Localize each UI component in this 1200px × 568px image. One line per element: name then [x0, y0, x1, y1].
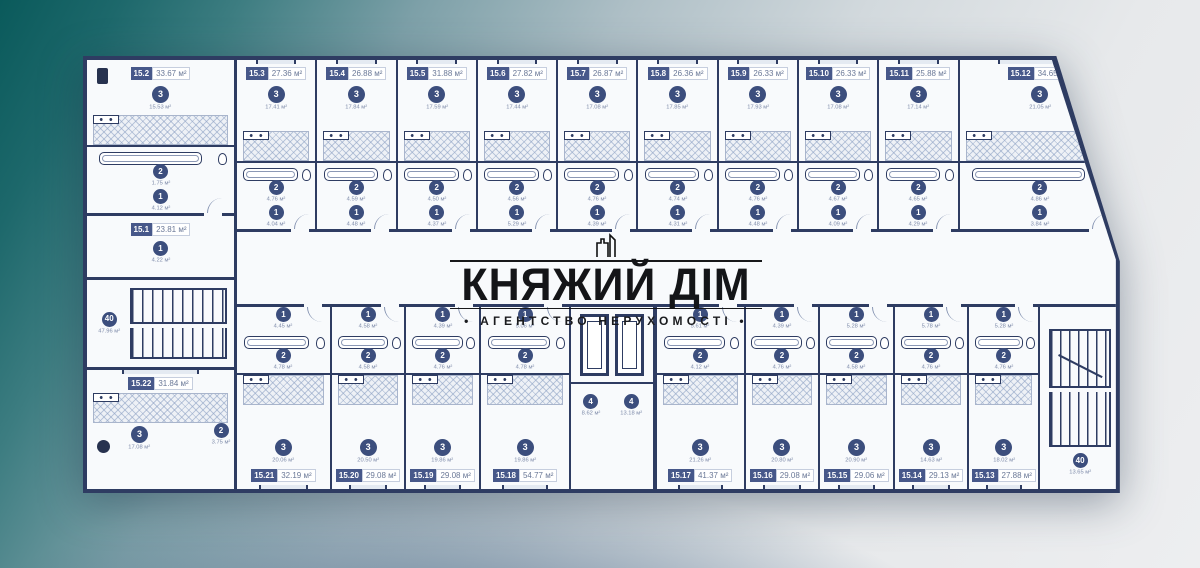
lobby-badge: 413.18 м² [616, 394, 646, 418]
room-number-badge: 2 [911, 180, 926, 195]
unit-badge: 15.233.67 м² [131, 67, 191, 80]
unit-number-label: 15.9 [728, 67, 750, 80]
unit-area-label: 32.19 м² [277, 469, 315, 482]
unit-badge: 15.1234.65 м² [1008, 67, 1072, 80]
stove-icon [93, 115, 119, 124]
room-number-badge: 2 [590, 180, 605, 195]
room-area-label: 4.76 м² [588, 196, 607, 202]
unit-number-label: 15.6 [487, 67, 509, 80]
room-area-label: 4.29 м² [909, 221, 928, 227]
door-opening [371, 229, 389, 232]
stove-icon [826, 375, 852, 384]
hallway-badge: 14.31 м² [665, 205, 691, 229]
room-area-label: 17.08 м² [129, 444, 151, 450]
bathroom-badge: 21.75 м² [148, 164, 174, 188]
hallway-badge: 15.06 м² [512, 307, 538, 331]
living-room-badge: 314.63 м² [916, 439, 946, 465]
room-number-badge: 3 [275, 439, 292, 456]
room-number-badge: 1 [349, 205, 364, 220]
room-area-label: 4.76 м² [994, 364, 1013, 370]
unit-15.10: 15.1026.33 м²317.08 м²24.67 м²14.09 м² [797, 60, 877, 232]
stove-icon [805, 131, 831, 140]
window-icon [259, 485, 307, 489]
door-swing-icon [384, 307, 399, 322]
living-room-badge: 317.41 м² [261, 86, 291, 112]
door-swing-icon [722, 307, 737, 322]
room-area-label: 4.86 м² [1030, 196, 1049, 202]
stair-steps [1049, 329, 1111, 447]
room-area-label: 5.61 м² [691, 323, 710, 329]
bathroom-badge: 24.58 м² [844, 348, 870, 372]
unit-15.19: 14.39 м²24.76 м²319.86 м²15.1929.08 м² [404, 304, 479, 489]
toilet-icon [556, 337, 565, 349]
left-section: 15.233.67 м²315.53 м²21.75 м²14.12 м²15.… [87, 60, 237, 489]
living-room-badge: 317.59 м² [422, 86, 452, 112]
unit-15.20: 14.58 м²24.58 м²320.50 м²15.2029.08 м² [330, 304, 405, 489]
hallway: 14.37 м² [398, 205, 476, 229]
room-area-label: 4.65 м² [909, 196, 928, 202]
bathroom-badge: 24.56 м² [504, 180, 530, 204]
window-icon [657, 60, 698, 64]
bathroom: 24.78 м² [481, 331, 570, 375]
bathroom: 24.12 м² [657, 331, 744, 375]
bathroom-badge: 24.74 м² [665, 180, 691, 204]
unit-area-label: 26.88 м² [348, 67, 386, 80]
room-area-label: 17.08 м² [586, 104, 608, 110]
bathroom-badge: 24.76 м² [991, 348, 1017, 372]
door-swing-icon [1018, 307, 1033, 322]
unit-badge: 15.1929.08 м² [410, 469, 474, 482]
bathroom: 24.76 м² [406, 331, 479, 375]
room-number-badge: 1 [361, 307, 376, 322]
bathroom: 24.58 м² [820, 331, 893, 375]
hallway: 14.58 м² [332, 307, 405, 331]
unit-area-label: 26.87 м² [589, 67, 627, 80]
hallway: 14.31 м² [638, 205, 716, 229]
unit-15.12: 15.1234.65 м²321.05 м²24.86 м²13.84 м² [958, 60, 1120, 232]
unit-badge: 15.1125.88 м² [886, 67, 950, 80]
room-area-label: 5.78 м² [922, 323, 941, 329]
bathroom-badge: 24.12 м² [687, 348, 713, 372]
living-room-badge: 317.08 м² [124, 426, 154, 452]
door-swing-icon [535, 214, 550, 229]
room-number-badge: 40 [1073, 453, 1088, 468]
room-number-badge: 2 [361, 348, 376, 363]
hallway-badge: 13.84 м² [1027, 205, 1053, 229]
kitchen-floor [966, 131, 1114, 161]
room-area-label: 8.62 м² [581, 410, 600, 416]
room-number-badge: 1 [435, 307, 450, 322]
room-number-badge: 3 [508, 86, 525, 103]
door-swing-icon [615, 214, 630, 229]
window-icon [122, 370, 198, 374]
bathroom: 24.58 м² [332, 331, 405, 375]
hallway: 14.48 м² [719, 205, 797, 229]
unit-number-label: 15.22 [128, 377, 154, 390]
hallway: 14.39 м² [746, 307, 819, 331]
unit-badge: 15.1741.37 м² [668, 469, 732, 482]
bathroom-badge: 24.76 м² [584, 180, 610, 204]
living-room-badge: 317.08 м² [823, 86, 853, 112]
window-icon [912, 485, 950, 489]
unit-number-label: 15.11 [886, 67, 912, 80]
stove-icon [484, 131, 510, 140]
unit-badge: 15.2029.08 м² [336, 469, 400, 482]
stove-icon [487, 375, 513, 384]
unit-number-label: 15.18 [493, 469, 519, 482]
room-number-badge: 2 [269, 180, 284, 195]
hallway: 15.28 м² [969, 307, 1038, 331]
bathroom: 24.76 м² [558, 161, 636, 205]
stove-icon [725, 131, 751, 140]
stove-icon [93, 393, 119, 402]
room-number-badge: 2 [670, 180, 685, 195]
unit-badge: 15.1026.33 м² [806, 67, 870, 80]
unit-number-label: 15.14 [899, 469, 925, 482]
elevator-shafts [571, 307, 652, 384]
room-area-label: 4.12 м² [151, 205, 170, 211]
unit-number-label: 15.2 [131, 67, 153, 80]
room-area-label: 3.84 м² [1030, 221, 1049, 227]
living-room-badge: 319.86 м² [427, 439, 457, 465]
hallway: 14.48 м² [317, 205, 395, 229]
hallway: 15.06 м² [481, 307, 570, 331]
hallway-badge: 14.29 м² [905, 205, 931, 229]
hallway-badge: 15.28 м² [991, 307, 1017, 331]
room-number-badge: 3 [923, 439, 940, 456]
corridor [237, 232, 1120, 304]
room-area-label: 5.29 м² [508, 221, 527, 227]
room-area-label: 4.58 м² [359, 364, 378, 370]
toilet-icon [392, 337, 401, 349]
room-number-badge: 2 [153, 164, 168, 179]
room-number-badge: 3 [360, 439, 377, 456]
unit-number-label: 15.19 [410, 469, 436, 482]
room-area-label: 4.48 м² [748, 221, 767, 227]
living-room-badge: 317.44 м² [502, 86, 532, 112]
toilet-icon [316, 337, 325, 349]
room-area-label: 4.76 м² [267, 196, 286, 202]
living-room-badge: 317.93 м² [743, 86, 773, 112]
stove-icon [323, 131, 349, 140]
room-number-badge: 1 [911, 205, 926, 220]
room-area-label: 20.90 м² [846, 457, 868, 463]
room-number-badge: 3 [348, 86, 365, 103]
door-swing-icon [374, 214, 389, 229]
room-number-badge: 3 [268, 86, 285, 103]
kitchen-floor [725, 131, 791, 161]
room-area-label: 4.76 м² [433, 364, 452, 370]
unit-area-label: 26.33 м² [749, 67, 787, 80]
unit-area-label: 27.88 м² [998, 469, 1036, 482]
unit-number-label: 15.13 [972, 469, 998, 482]
living-room-badge: 320.80 м² [767, 439, 797, 465]
room-area-label: 17.93 м² [747, 104, 769, 110]
room-number-badge: 1 [924, 307, 939, 322]
bathroom: 21.75 м² [87, 145, 234, 189]
floor-plan-paper: 15.233.67 м²315.53 м²21.75 м²14.12 м²15.… [87, 60, 1120, 489]
door-opening [291, 229, 309, 232]
door-opening [933, 229, 951, 232]
room-number-badge: 1 [750, 205, 765, 220]
bathroom: 24.74 м² [638, 161, 716, 205]
unit-number-label: 15.7 [567, 67, 589, 80]
toilet-icon [624, 169, 633, 181]
unit-badge: 15.123.81 м² [131, 223, 191, 236]
toilet-icon [302, 169, 311, 181]
bathroom: 24.67 м² [799, 161, 877, 205]
door-swing-icon [547, 307, 562, 322]
room-area-label: 17.41 м² [265, 104, 287, 110]
room-area-label: 4.37 м² [427, 221, 446, 227]
room-area-label: 5.06 м² [516, 323, 535, 329]
room-number-badge: 1 [774, 307, 789, 322]
room-number-badge: 2 [693, 348, 708, 363]
door-swing-icon [936, 214, 951, 229]
room-number-badge: 3 [830, 86, 847, 103]
room-area-label: 4.39 м² [773, 323, 792, 329]
room-area-label: 4.48 м² [347, 221, 366, 227]
unit-number-label: 15.10 [806, 67, 832, 80]
toilet-icon [955, 337, 964, 349]
unit-area-label: 34.65 м² [1034, 67, 1072, 80]
bathroom-badge: 24.65 м² [905, 180, 931, 204]
room-number-badge: 2 [849, 348, 864, 363]
toilet-icon [463, 169, 472, 181]
room-number-badge: 2 [214, 423, 229, 438]
room-number-badge: 2 [509, 180, 524, 195]
room-number-badge: 1 [996, 307, 1011, 322]
room-area-label: 4.76 м² [922, 364, 941, 370]
room-area-label: 18.02 м² [993, 457, 1015, 463]
toilet-icon [1026, 337, 1035, 349]
room-area-label: 4.22 м² [151, 257, 170, 263]
kitchen-floor [805, 131, 871, 161]
unit-area-label: 31.84 м² [154, 377, 192, 390]
elevator-lobby: 48.62 м²413.18 м² [571, 384, 652, 418]
stove-icon [885, 131, 911, 140]
bathroom-badge: 24.67 м² [825, 180, 851, 204]
door-swing-icon [294, 214, 309, 229]
room-area-label: 47.96 м² [98, 328, 120, 334]
room-number-badge: 2 [924, 348, 939, 363]
hallway-badge: 14.22 м² [148, 241, 174, 265]
unit-badge: 15.1529.06 м² [824, 469, 888, 482]
room-number-badge: 1 [276, 307, 291, 322]
toilet-icon [704, 169, 713, 181]
room-number-badge: 1 [1032, 205, 1047, 220]
hallway-badge: 15.28 м² [844, 307, 870, 331]
living-room-badge: 317.84 м² [341, 86, 371, 112]
hallway-badge: 14.39 м² [430, 307, 456, 331]
elevator-shaft [580, 314, 609, 376]
kitchen-floor [975, 375, 1032, 405]
kitchen-floor [487, 375, 564, 405]
hallway: 14.09 м² [799, 205, 877, 229]
unit-area-label: 27.82 м² [509, 67, 547, 80]
room-area-label: 19.86 м² [432, 457, 454, 463]
living-room-badge: 321.05 м² [1025, 86, 1055, 112]
room-area-label: 4.45 м² [274, 323, 293, 329]
stove-icon [338, 375, 364, 384]
toilet-icon [880, 337, 889, 349]
unit-badge: 15.1854.77 м² [493, 469, 557, 482]
stove-icon [966, 131, 992, 140]
hallway-badge: 14.45 м² [270, 307, 296, 331]
room-number-badge: 4 [583, 394, 598, 409]
unit-15.8: 15.826.36 м²317.85 м²24.74 м²14.31 м² [636, 60, 716, 232]
stair-steps [130, 288, 227, 359]
unit-15.1: 15.123.81 м²14.22 м² [87, 216, 234, 280]
stove-icon [663, 375, 689, 384]
room-area-label: 4.12 м² [691, 364, 710, 370]
unit-badge: 15.726.87 м² [567, 67, 627, 80]
door-swing-icon [458, 307, 473, 322]
unit-15.21: 14.45 м²24.78 м²320.06 м²15.2132.19 м² [237, 304, 330, 489]
stove-icon [243, 131, 269, 140]
room-area-label: 4.50 м² [427, 196, 446, 202]
unit-badge: 15.531.88 м² [407, 67, 467, 80]
unit-15.16: 14.39 м²24.76 м²320.80 м²15.1629.08 м² [744, 304, 819, 489]
room-number-badge: 3 [152, 86, 169, 103]
unit-number-label: 15.21 [251, 469, 277, 482]
window-icon [678, 485, 723, 489]
stove-icon [412, 375, 438, 384]
bottom-units-row: 14.45 м²24.78 м²320.06 м²15.2132.19 м²14… [237, 304, 1120, 489]
right-stair-core: 4013.65 м² [1038, 304, 1120, 489]
room-area-label: 4.78 м² [516, 364, 535, 370]
unit-area-label: 26.33 м² [832, 67, 870, 80]
unit-15.13: 15.28 м²24.76 м²318.02 м²15.1327.88 м² [967, 304, 1038, 489]
room-area-label: 1.75 м² [151, 180, 170, 186]
living-room-badge: 319.86 м² [510, 439, 540, 465]
window-icon [256, 60, 297, 64]
room-area-label: 13.65 м² [1069, 469, 1091, 475]
door-opening [204, 213, 222, 216]
hallway-badge: 14.39 м² [584, 205, 610, 229]
unit-area-label: 33.67 м² [152, 67, 190, 80]
room-area-label: 20.06 м² [272, 457, 294, 463]
window-icon [416, 60, 457, 64]
hallway: 14.12 м² [87, 189, 234, 213]
window-icon [737, 60, 778, 64]
unit-number-label: 15.20 [336, 469, 362, 482]
bathroom: 24.76 м² [237, 161, 315, 205]
living-room-badge: 317.85 м² [662, 86, 692, 112]
hallway-badge: 15.78 м² [918, 307, 944, 331]
room-area-label: 17.08 м² [827, 104, 849, 110]
structural-column [1097, 69, 1110, 82]
floorplan-screenshot: 15.233.67 м²315.53 м²21.75 м²14.12 м²15.… [0, 0, 1200, 568]
room-area-label: 4.78 м² [274, 364, 293, 370]
unit-badge: 15.627.82 м² [487, 67, 547, 80]
living-room-badge: 315.53 м² [145, 86, 175, 112]
unit-area-label: 54.77 м² [519, 469, 557, 482]
hallway-badge: 14.58 м² [355, 307, 381, 331]
door-opening [1089, 229, 1107, 232]
room-area-label: 21.26 м² [689, 457, 711, 463]
room-number-badge: 3 [517, 439, 534, 456]
unit-15.14: 15.78 м²24.76 м²314.63 м²15.1429.13 м² [893, 304, 968, 489]
room-number-badge: 1 [153, 189, 168, 204]
door-swing-icon [797, 307, 812, 322]
toilet-icon [383, 169, 392, 181]
kitchen-floor [323, 131, 389, 161]
elevator-core: 48.62 м²413.18 м² [569, 304, 654, 489]
unit-15.22: 15.2231.84 м²317.08 м²23.75 м² [87, 370, 234, 462]
staircase-badge: 4047.96 м² [94, 312, 124, 336]
bathroom-badge: 24.78 м² [270, 348, 296, 372]
window-icon [763, 485, 801, 489]
room-area-label: 4.31 м² [668, 221, 687, 227]
bathroom-badge: 24.59 м² [343, 180, 369, 204]
unit-area-label: 29.08 м² [776, 469, 814, 482]
bathroom-badge: 24.76 м² [263, 180, 289, 204]
bathroom-badge: 24.76 м² [745, 180, 771, 204]
stove-icon [644, 131, 670, 140]
toilet-icon [864, 169, 873, 181]
hallway-badge: 14.48 м² [343, 205, 369, 229]
unit-area-label: 29.13 м² [925, 469, 963, 482]
room-number-badge: 3 [589, 86, 606, 103]
unit-number-label: 15.5 [407, 67, 429, 80]
bathroom: 24.59 м² [317, 161, 395, 205]
room-number-badge: 1 [590, 205, 605, 220]
unit-badge: 15.1429.13 м² [899, 469, 963, 482]
window-icon [986, 485, 1022, 489]
door-opening [612, 229, 630, 232]
unit-number-label: 15.12 [1008, 67, 1034, 80]
hallway: 15.29 м² [478, 205, 556, 229]
room-number-badge: 1 [269, 205, 284, 220]
door-swing-icon [946, 307, 961, 322]
unit-number-label: 15.4 [326, 67, 348, 80]
window-icon [838, 485, 876, 489]
room-number-badge: 3 [995, 439, 1012, 456]
door-swing-icon [776, 214, 791, 229]
door-swing-icon [455, 214, 470, 229]
room-area-label: 4.04 м² [267, 221, 286, 227]
unit-area-label: 29.06 м² [850, 469, 888, 482]
bathroom-badge: 24.58 м² [355, 348, 381, 372]
hallway-badge: 14.48 м² [745, 205, 771, 229]
toilet-icon [543, 169, 552, 181]
room-number-badge: 2 [1032, 180, 1047, 195]
room-number-badge: 1 [670, 205, 685, 220]
elevator-shaft [615, 314, 644, 376]
room-area-label: 4.58 м² [847, 364, 866, 370]
room-number-badge: 2 [831, 180, 846, 195]
unit-area-label: 29.08 м² [436, 469, 474, 482]
room-number-badge: 2 [518, 348, 533, 363]
window-icon [998, 60, 1081, 64]
room-area-label: 4.09 м² [829, 221, 848, 227]
room-number-badge: 1 [153, 241, 168, 256]
room-number-badge: 3 [749, 86, 766, 103]
room-area-label: 4.76 м² [748, 196, 767, 202]
hallway: 15.61 м² [657, 307, 744, 331]
door-opening [532, 229, 550, 232]
hallway: 15.78 м² [895, 307, 968, 331]
room-number-badge: 2 [996, 348, 1011, 363]
unit-area-label: 29.08 м² [362, 469, 400, 482]
room-number-badge: 1 [518, 307, 533, 322]
room-number-badge: 1 [693, 307, 708, 322]
bathroom: 24.76 м² [719, 161, 797, 205]
left-staircase: 4047.96 м² [87, 280, 234, 370]
window-icon [577, 60, 618, 64]
structural-column [97, 440, 110, 453]
